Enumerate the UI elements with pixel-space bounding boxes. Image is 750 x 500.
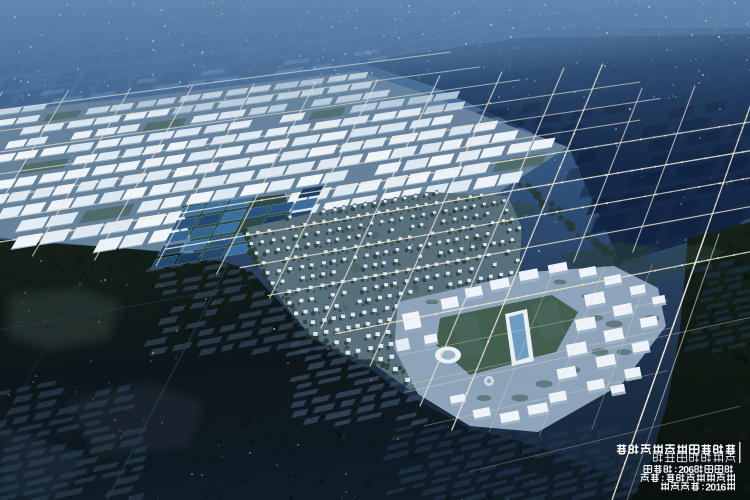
- svg-text:6: 6: [721, 482, 727, 493]
